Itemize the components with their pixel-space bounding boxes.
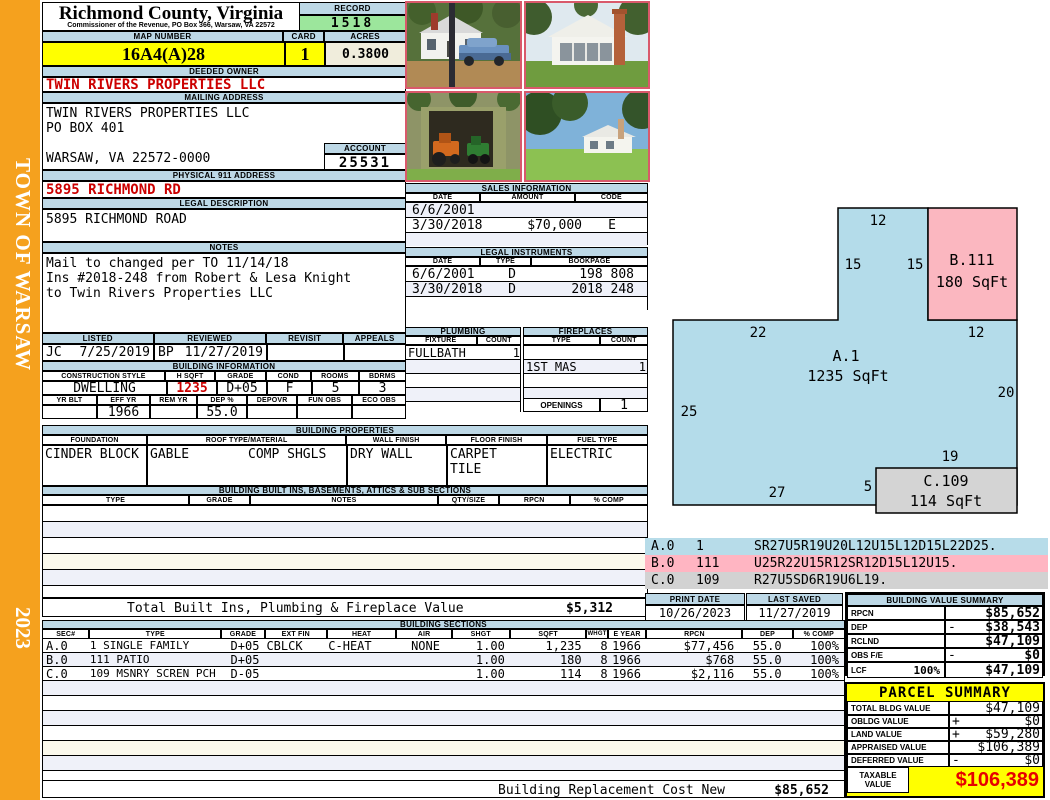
roof-material-value: COMP SHGLS	[248, 447, 326, 462]
dim-tower-left: 15	[845, 257, 862, 273]
commissioner-line: Commissioner of the Revenue, PO Box 366,…	[43, 22, 299, 31]
instrument-type: D	[490, 267, 534, 282]
mailing-line-3: WARSAW, VA 22572-0000	[46, 151, 210, 166]
fuel-type-label: FUEL TYPE	[547, 435, 648, 445]
ecoobs-value	[352, 405, 406, 419]
fixture-value: FULLBATH	[406, 346, 484, 360]
fuel-type-value: ELECTRIC	[547, 445, 648, 486]
sec-sqft-label: SQFT	[510, 629, 587, 639]
photo-house-porch-chimney-image	[526, 3, 648, 87]
reviewed-label: REVIEWED	[154, 333, 267, 344]
listed-date: 7/25/2019	[80, 345, 150, 360]
fireplaces-rows: 1ST MAS 1	[523, 345, 648, 398]
floor-finish-2: TILE	[450, 462, 546, 477]
sales-date-label: DATE	[405, 193, 480, 202]
fireplaces-headers: TYPE COUNT	[523, 336, 648, 345]
bdrms-label: BDRMS	[359, 371, 406, 381]
dep-pct-label: DEP %	[197, 395, 247, 405]
last-saved-value: 11/27/2019	[746, 605, 843, 621]
bvs-value: $0	[1024, 648, 1040, 663]
fixture-count-label: COUNT	[477, 336, 521, 345]
mailing-address-label: MAILING ADDRESS	[42, 92, 406, 103]
instrument-type: D	[490, 282, 534, 297]
vector-row-c: C.0109R27U5SD6R19U6L19.	[645, 572, 1048, 589]
instrument-date-label: DATE	[405, 257, 480, 266]
openings-value: 1	[600, 398, 648, 412]
bvs-row-lcf: LCF 100% $47,109	[847, 662, 1043, 678]
sales-code-label: CODE	[575, 193, 648, 202]
wall-finish-label: WALL FINISH	[346, 435, 446, 445]
foundation-label: FOUNDATION	[42, 435, 147, 445]
bvs-row-rclnd: RCLND $47,109	[847, 634, 1043, 648]
bvs-value: $85,652	[985, 606, 1040, 621]
acres-value: 0.3800	[325, 42, 406, 66]
bvs-value: $38,543	[985, 620, 1040, 635]
dim-tower-right: 15	[907, 257, 924, 273]
review-value-row: JC 7/25/2019 BP 11/27/2019	[42, 344, 406, 361]
yrblt-value	[42, 405, 97, 419]
sec-label: SEC#	[42, 629, 89, 639]
reviewed-by: BP	[158, 345, 174, 360]
photo-house-front-car[interactable]	[405, 1, 522, 89]
building-section-row-c: C.0109 MSNRY SCREN PCH D-05 1.00114 8196…	[42, 667, 845, 681]
hsqft-value: 1235	[167, 381, 217, 395]
county-header: Richmond County, Virginia Commissioner o…	[42, 2, 406, 31]
account-label: ACCOUNT	[324, 143, 406, 154]
instrument-row	[406, 297, 647, 310]
builtin-type-label: TYPE	[42, 495, 189, 505]
record-label: RECORD	[299, 2, 406, 15]
bvs-value: $47,109	[985, 634, 1040, 649]
plumbing-title: PLUMBING	[405, 327, 521, 336]
building-properties-headers: FOUNDATION ROOF TYPE/MATERIAL WALL FINIS…	[42, 435, 648, 445]
builtin-comp-label: % COMP	[570, 495, 648, 505]
instruments-rows: 6/6/2001 D 198 808 3/30/2018 D 2018 248	[405, 266, 648, 310]
building-properties-title: BUILDING PROPERTIES	[42, 425, 648, 435]
print-date-label: PRINT DATE	[645, 593, 745, 605]
depovr-label: DEPOVR	[247, 395, 297, 405]
reviewed-value: BP 11/27/2019	[154, 344, 267, 361]
construction-style-label: CONSTRUCTION STYLE	[42, 371, 165, 381]
sec-rpcn-label: RPCN	[646, 629, 742, 639]
rooms-value: 5	[312, 381, 359, 395]
sales-row: 6/6/2001	[406, 203, 647, 218]
building-section-row-b: B.0111 PATIO D+05 1.00180 81966 $76855.0…	[42, 653, 845, 667]
notes-label: NOTES	[42, 242, 406, 253]
floor-finish-value: CARPET TILE	[447, 445, 547, 486]
builtins-title: BUILDING BUILT INS, BASEMENTS, ATTICS & …	[42, 486, 648, 495]
print-date-box: PRINT DATE 10/26/2023	[645, 593, 745, 617]
sec-dep-label: DEP	[742, 629, 792, 639]
effyr-value: 1966	[97, 405, 150, 419]
sec-comp-label: % COMP	[793, 629, 845, 639]
physical-address-value: 5895 RICHMOND RD	[42, 181, 406, 198]
instrument-bookpage: 2018 248	[534, 282, 634, 297]
reviewed-date: 11/27/2019	[185, 345, 263, 360]
building-value-summary: BUILDING VALUE SUMMARY RPCN $85,652 DEP …	[845, 592, 1045, 676]
appeals-label: APPEALS	[343, 333, 406, 344]
map-number-label: MAP NUMBER	[42, 31, 283, 42]
yrblt-label: YR BLT	[42, 395, 97, 405]
builtins-total-label: Total Built Ins, Plumbing & Fireplace Va…	[127, 601, 464, 616]
roof-value: GABLE COMP SHGLS	[147, 445, 347, 486]
wall-finish-value: DRY WALL	[347, 445, 447, 486]
record-value: 1518	[299, 15, 406, 31]
taxable-value: $106,389	[909, 767, 1043, 793]
builtins-total-value: $5,312	[566, 601, 613, 616]
instruments-headers: DATE TYPE BOOKPAGE	[405, 257, 648, 266]
last-saved-label: LAST SAVED	[746, 593, 843, 605]
parcel-sign: +	[952, 727, 960, 742]
parcel-summary-title: PARCEL SUMMARY	[847, 684, 1043, 701]
ecoobs-label: ECO OBS	[352, 395, 406, 405]
deeded-owner-value: TWIN RIVERS PROPERTIES LLC	[42, 77, 406, 92]
building-sections-headers: SEC# TYPE GRADE EXT FIN HEAT AIR SHGT SQ…	[42, 629, 845, 639]
sketch-section-c-sqft: 114 SqFt	[910, 492, 982, 510]
sidebar-town-label: TOWN OF WARSAW	[5, 95, 35, 435]
parcel-row-taxable: TAXABLEVALUE $106,389	[847, 767, 1043, 793]
parcel-summary: PARCEL SUMMARY TOTAL BLDG VALUE $47,109 …	[845, 682, 1045, 798]
grade-value: D+05	[217, 381, 267, 395]
instrument-bookpage-label: BOOKPAGE	[531, 257, 648, 266]
funobs-label: FUN OBS	[297, 395, 352, 405]
building-properties-values: CINDER BLOCK GABLE COMP SHGLS DRY WALL C…	[42, 445, 648, 486]
dim-bottom: 27	[769, 485, 786, 501]
building-info-values-1: DWELLING 1235 D+05 F 5 3	[42, 381, 406, 395]
property-record-card: TOWN OF WARSAW 2023 Richmond County, Vir…	[0, 0, 1050, 800]
card-label: CARD	[283, 31, 324, 42]
builtins-headers: TYPE GRADE NOTES QTY/SIZE RPCN % COMP	[42, 495, 648, 505]
dep-pct-value: 55.0	[197, 405, 247, 419]
rooms-label: ROOMS	[311, 371, 358, 381]
builtin-rpcn-label: RPCN	[499, 495, 570, 505]
parcel-row-deferred: DEFERRED VALUE - $0	[847, 754, 1043, 767]
bvs-value: $47,109	[985, 663, 1040, 678]
instrument-row: 6/6/2001 D 198 808	[406, 267, 647, 282]
roof-type-value: GABLE	[150, 447, 189, 462]
sale-code: E	[582, 218, 642, 233]
plumbing-headers: FIXTURE COUNT	[405, 336, 521, 345]
vector-row-b: B.0111U25R22U15R12SR12D15L12U15.	[645, 555, 1048, 572]
bvs-row-dep: DEP - $38,543	[847, 620, 1043, 634]
parcel-sign: -	[952, 753, 960, 768]
roof-label: ROOF TYPE/MATERIAL	[147, 435, 346, 445]
building-sketch: 12 15 15 B.111 180 SqFt 12 22 A.1 1235 S…	[650, 193, 1050, 538]
building-info-headers-2: YR BLT EFF YR REM YR DEP % DEPOVR FUN OB…	[42, 395, 406, 405]
builtin-qty-label: QTY/SIZE	[438, 495, 499, 505]
openings-row: OPENINGS 1	[523, 398, 648, 412]
fireplace-count-value: 1	[608, 360, 646, 374]
effyr-label: EFF YR	[97, 395, 150, 405]
bvs-label: LCF	[851, 666, 867, 675]
bdrms-value: 3	[359, 381, 406, 395]
sales-row	[406, 233, 647, 246]
bvs-sign: -	[948, 648, 956, 663]
physical-address-label: PHYSICAL 911 ADDRESS	[42, 170, 406, 181]
fireplace-count-label: COUNT	[600, 336, 648, 345]
parcel-row-bldg: TOTAL BLDG VALUE $47,109	[847, 701, 1043, 715]
mailing-line-2: PO BOX 401	[46, 121, 124, 136]
photo-house-lawn[interactable]	[524, 91, 650, 182]
sales-headers: DATE AMOUNT CODE	[405, 193, 648, 202]
revisit-label: REVISIT	[266, 333, 343, 344]
sketch-vector-rows: A.01SR27U5R19U20L12U15L12D15L22D25. B.01…	[645, 538, 1048, 589]
floor-finish-1: CARPET	[450, 447, 546, 462]
notes-line-3: to Twin Rivers Properties LLC	[46, 286, 273, 301]
sketch-section-a-sqft: 1235 SqFt	[807, 367, 888, 385]
sec-extfin-label: EXT FIN	[265, 629, 327, 639]
builtin-grade-label: GRADE	[189, 495, 250, 505]
revisit-value	[267, 344, 344, 361]
parcel-value: $0	[1024, 753, 1040, 768]
sketch-section-b-id: B.111	[949, 251, 994, 269]
mailing-line-1: TWIN RIVERS PROPERTIES LLC	[46, 106, 250, 121]
sec-type-label: TYPE	[89, 629, 221, 639]
remyr-value	[150, 405, 197, 419]
building-information-title: BUILDING INFORMATION	[42, 361, 406, 371]
instrument-date: 6/6/2001	[406, 267, 490, 282]
construction-style-value: DWELLING	[42, 381, 167, 395]
fixture-label: FIXTURE	[405, 336, 477, 345]
remyr-label: REM YR	[150, 395, 197, 405]
photo-house-front-car-image	[407, 3, 520, 87]
builtin-notes-label: NOTES	[250, 495, 438, 505]
sec-heat-label: HEAT	[327, 629, 397, 639]
building-sections-empty-rows	[42, 681, 845, 780]
notes-line-1: Mail to changed per TO 11/14/18	[46, 256, 289, 271]
building-info-values-2: 1966 55.0	[42, 405, 406, 419]
listed-by: JC	[46, 345, 62, 360]
bvs-row-rpcn: RPCN $85,652	[847, 606, 1043, 620]
replacement-cost-row: Building Replacement Cost New $85,652	[42, 780, 845, 798]
builtins-empty-rows	[42, 505, 648, 598]
grade-label: GRADE	[215, 371, 265, 381]
taxable-value-label: TAXABLEVALUE	[847, 767, 909, 793]
fireplace-row: 1ST MAS 1	[524, 360, 647, 374]
bvs-row-obs: OBS F/E - $0	[847, 648, 1043, 662]
funobs-value	[297, 405, 352, 419]
building-section-row-a: A.01 SINGLE FAMILY D+05CBLCK C-HEATNONE …	[42, 639, 845, 653]
notes-box: Mail to changed per TO 11/14/18 Ins #201…	[42, 253, 406, 333]
instrument-type-label: TYPE	[480, 257, 531, 266]
floor-finish-label: FLOOR FINISH	[446, 435, 546, 445]
depovr-value	[247, 405, 297, 419]
account-value: 25531	[324, 154, 406, 170]
builtins-total-row: Total Built Ins, Plumbing & Fireplace Va…	[42, 598, 648, 617]
dim-main-top: 22	[750, 325, 767, 341]
dim-c-top: 19	[942, 449, 959, 465]
cond-label: COND	[266, 371, 312, 381]
card-value: 1	[285, 42, 325, 66]
sale-date: 6/6/2001	[406, 203, 492, 218]
dim-right: 20	[998, 385, 1015, 401]
replacement-cost-value: $85,652	[774, 783, 829, 798]
sec-grade-label: GRADE	[221, 629, 265, 639]
instrument-row: 3/30/2018 D 2018 248	[406, 282, 647, 297]
replacement-cost-label: Building Replacement Cost New	[498, 783, 725, 798]
sec-whgt-label: WHGT	[586, 629, 607, 639]
sales-title: SALES INFORMATION	[405, 183, 648, 193]
legal-description-box: 5895 RICHMOND ROAD	[42, 209, 406, 242]
building-value-summary-title: BUILDING VALUE SUMMARY	[847, 594, 1043, 606]
deeded-owner-label: DEEDED OWNER	[42, 66, 406, 77]
photo-shed-tractors-image	[407, 93, 520, 180]
foundation-value: CINDER BLOCK	[42, 445, 147, 486]
dim-left: 25	[681, 404, 698, 420]
county-title: Richmond County, Virginia	[43, 3, 299, 23]
fireplaces-title: FIREPLACES	[523, 327, 648, 336]
bvs-lcf-pct: 100%	[914, 664, 941, 677]
sketch-section-a-id: A.1	[832, 347, 859, 365]
photo-shed-tractors[interactable]	[405, 91, 522, 182]
fixture-count-value: 1	[484, 346, 520, 360]
instrument-date: 3/30/2018	[406, 282, 490, 297]
listed-label: LISTED	[42, 333, 154, 344]
sketch-section-b-sqft: 180 SqFt	[936, 273, 1008, 291]
plumbing-row: FULLBATH 1	[406, 346, 520, 360]
dim-c-left: 5	[864, 479, 872, 495]
cond-value: F	[267, 381, 312, 395]
sales-rows: 6/6/2001 3/30/2018 $70,000 E	[405, 202, 648, 245]
sale-amount: $70,000	[492, 218, 582, 233]
notes-line-2: Ins #2018-248 from Robert & Lesa Knight	[46, 271, 351, 286]
dim-b-bottom: 12	[968, 325, 985, 341]
openings-label: OPENINGS	[523, 398, 600, 412]
review-header-bar: LISTED REVIEWED REVISIT APPEALS	[42, 333, 406, 344]
plumbing-rows: FULLBATH 1	[405, 345, 521, 412]
sales-amount-label: AMOUNT	[480, 193, 575, 202]
listed-value: JC 7/25/2019	[42, 344, 154, 361]
map-header-bar: MAP NUMBER CARD ACRES	[42, 31, 406, 42]
map-number-value: 16A4(A)28	[42, 42, 285, 66]
photo-house-lawn-image	[526, 93, 648, 180]
sketch-section-c-id: C.109	[923, 472, 968, 490]
instrument-bookpage: 198 808	[534, 267, 634, 282]
appeals-value	[344, 344, 406, 361]
legal-description-label: LEGAL DESCRIPTION	[42, 198, 406, 209]
last-saved-box: LAST SAVED 11/27/2019	[746, 593, 843, 617]
sale-date: 3/30/2018	[406, 218, 492, 233]
map-value-row: 16A4(A)28 1 0.3800	[42, 42, 406, 66]
bvs-sign: -	[948, 620, 956, 635]
sales-row: 3/30/2018 $70,000 E	[406, 218, 647, 233]
sidebar-year-label: 2023	[5, 590, 35, 665]
acres-label: ACRES	[324, 31, 406, 42]
parcel-row-appraised: APPRAISED VALUE $106,389	[847, 741, 1043, 754]
sec-shgt-label: SHGT	[452, 629, 510, 639]
fireplace-type-label: TYPE	[523, 336, 600, 345]
instruments-title: LEGAL INSTRUMENTS	[405, 247, 648, 257]
dim-top: 12	[870, 213, 887, 229]
photo-house-porch-chimney[interactable]	[524, 1, 650, 89]
sec-eyear-label: E YEAR	[608, 629, 647, 639]
hsqft-label: H SQFT	[165, 371, 215, 381]
mailing-address-block: TWIN RIVERS PROPERTIES LLC PO BOX 401 WA…	[42, 103, 406, 170]
fireplace-type-value: 1ST MAS	[524, 360, 608, 374]
photo-grid	[405, 1, 650, 182]
building-info-headers-1: CONSTRUCTION STYLE H SQFT GRADE COND ROO…	[42, 371, 406, 381]
sec-air-label: AIR	[396, 629, 451, 639]
legal-description-value: 5895 RICHMOND ROAD	[46, 212, 187, 227]
building-sections-title: BUILDING SECTIONS	[42, 620, 845, 629]
vector-row-a: A.01SR27U5R19U20L12U15L12D15L22D25.	[645, 538, 1048, 555]
print-date-value: 10/26/2023	[645, 605, 745, 621]
